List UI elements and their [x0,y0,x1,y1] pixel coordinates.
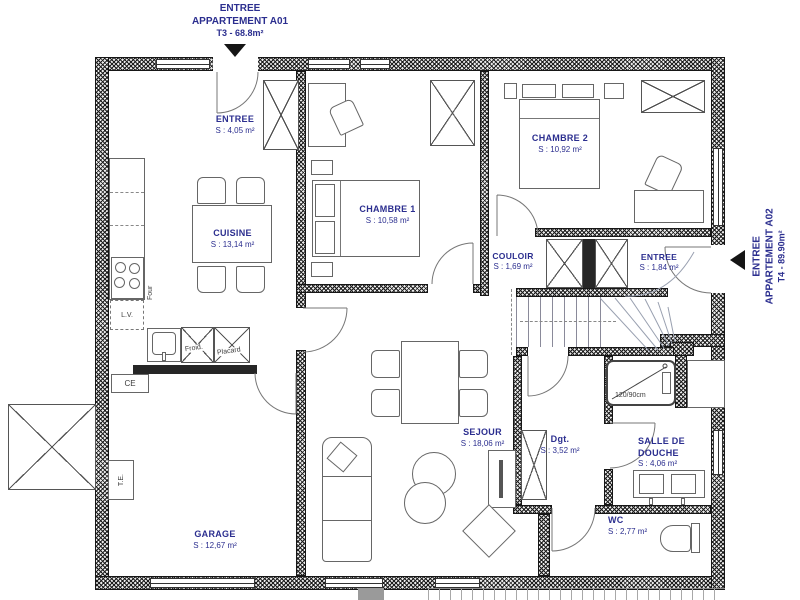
entrance-arrow-a01 [224,44,246,57]
room-label-salle-de-douche: SALLE DE DOUCHE S : 4,06 m² [638,436,713,470]
room-label-sejour: SEJOUR S : 18,06 m² [435,427,530,449]
header-apartment-a01: ENTREE APPARTEMENT A01 T3 - 68.8m² [145,3,335,40]
floor-plan-canvas: Four L.V. Froid. Placard 120/90cm [0,0,800,600]
room-label-entree-a01: ENTREE S : 4,05 m² [200,114,270,136]
room-label-garage: GARAGE S : 12,67 m² [160,529,270,551]
room-label-cuisine: CUISINE S : 13,14 m² [190,228,275,250]
door-arcs-overlay [0,0,800,600]
room-label-chambre2: CHAMBRE 2 S : 10,92 m² [505,133,615,155]
room-label-chambre1: CHAMBRE 1 S : 10,58 m² [330,204,445,226]
header-apartment-a02: ENTREE APPARTEMENT A02 T4 - 89.90m² [752,186,789,326]
room-label-wc: WC S : 2,77 m² [608,515,678,537]
entrance-arrow-a02 [730,250,745,270]
room-label-dgt: Dgt. S : 3,52 m² [525,434,595,456]
room-label-couloir: COULOIR S : 1,69 m² [482,251,544,272]
room-label-entree-a02: ENTREE S : 1,84 m² [626,252,692,273]
